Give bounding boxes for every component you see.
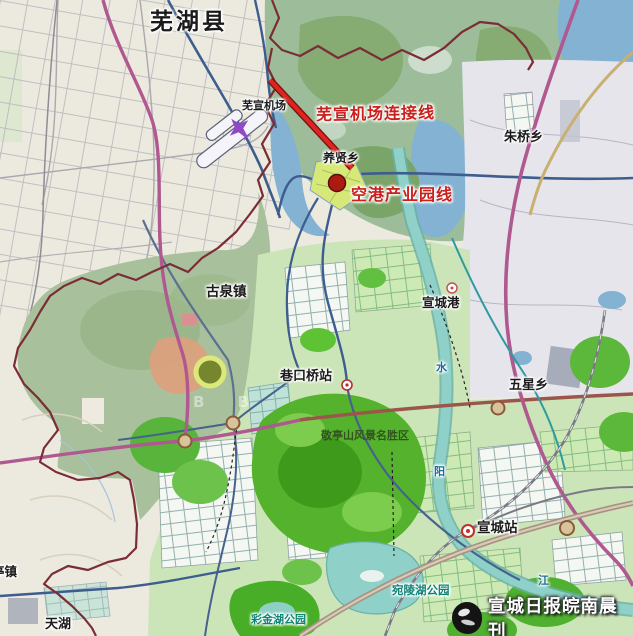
railway-station-icon-dot — [345, 383, 348, 386]
lake-label-tianhu: 天湖 — [45, 618, 71, 631]
station-label-xuancheng: 宣城站 — [477, 522, 518, 536]
township-label-zhuqiao: 朱桥乡 — [504, 131, 543, 144]
airport-industrial-park-line-label: 空港产业园线 — [351, 187, 453, 203]
river-label-jiang: 江 — [538, 575, 549, 586]
port-icon-dot — [451, 287, 454, 290]
airport-connection-line-label: 芜宣机场连接线 — [316, 105, 435, 123]
faint-watermark-letters: B B — [193, 393, 263, 411]
river-label-shui: 水 — [436, 362, 447, 373]
county-label-wuhu: 芜湖县 — [150, 11, 228, 34]
press-logo-icon — [452, 602, 482, 634]
planning-map: 芜湖县 芜宣机场 芜宣机场连接线 空港产业园线 养贤乡 朱桥乡 古泉镇 宣城港 … — [0, 0, 633, 636]
park-label-caijin-lake: 彩金湖公园 — [251, 614, 306, 625]
station-label-xiangkouqiao: 巷口桥站 — [280, 370, 332, 383]
press-watermark: 宣城日报皖南晨刊 — [452, 593, 633, 636]
airport-label: 芜宣机场 — [242, 100, 286, 111]
port-label-xuancheng: 宣城港 — [422, 297, 460, 310]
river-label-yang: 阳 — [434, 466, 445, 477]
press-name: 宣城日报皖南晨刊 — [488, 593, 633, 636]
park-label-wanling-lake: 宛陵湖公园 — [392, 585, 450, 597]
red-dot-marker — [329, 175, 346, 192]
scenic-area-label-jingtingshan: 敬亭山风景名胜区 — [321, 430, 409, 441]
partial-town-label: 亭镇 — [0, 566, 17, 579]
xuancheng-station-icon-dot — [466, 529, 470, 533]
township-label-wuxing: 五星乡 — [509, 379, 548, 392]
township-label-yangxian: 养贤乡 — [323, 152, 359, 164]
map-canvas — [0, 0, 633, 636]
town-label-guquan: 古泉镇 — [206, 286, 247, 300]
